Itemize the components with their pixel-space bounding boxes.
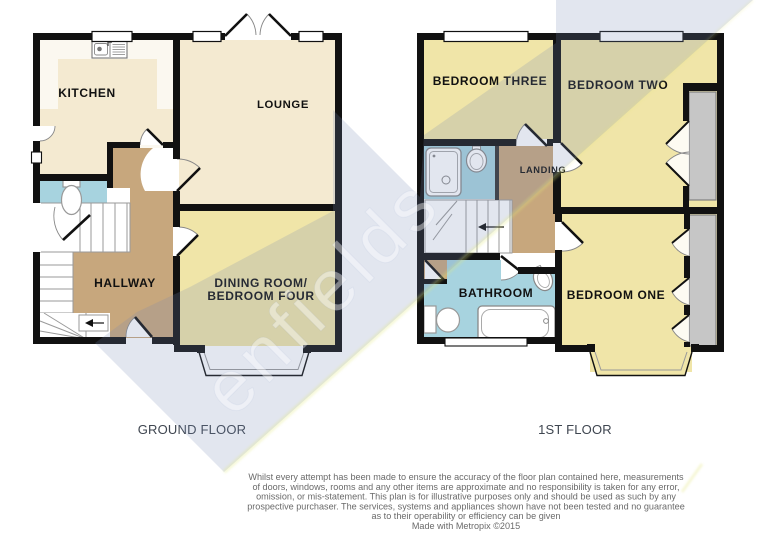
svg-text:as to their operability or eff: as to their operability or efficiency ca… <box>372 511 561 521</box>
svg-text:BATHROOM: BATHROOM <box>459 286 534 300</box>
svg-text:Whilst every attempt has been: Whilst every attempt has been made to en… <box>248 472 684 482</box>
svg-text:of doors, windows, rooms and a: of doors, windows, rooms and any other i… <box>252 482 679 492</box>
svg-text:HALLWAY: HALLWAY <box>94 276 156 290</box>
svg-text:1ST FLOOR: 1ST FLOOR <box>538 422 612 437</box>
svg-text:prospective purchaser. The ser: prospective purchaser. The services, sys… <box>247 501 685 511</box>
svg-text:omission, or mis-statement. Th: omission, or mis-statement. This plan is… <box>256 492 676 502</box>
svg-text:BEDROOM ONE: BEDROOM ONE <box>567 288 666 302</box>
svg-text:LOUNGE: LOUNGE <box>257 99 309 111</box>
svg-text:Made with Metropix ©2015: Made with Metropix ©2015 <box>412 521 520 531</box>
svg-text:KITCHEN: KITCHEN <box>58 86 116 100</box>
